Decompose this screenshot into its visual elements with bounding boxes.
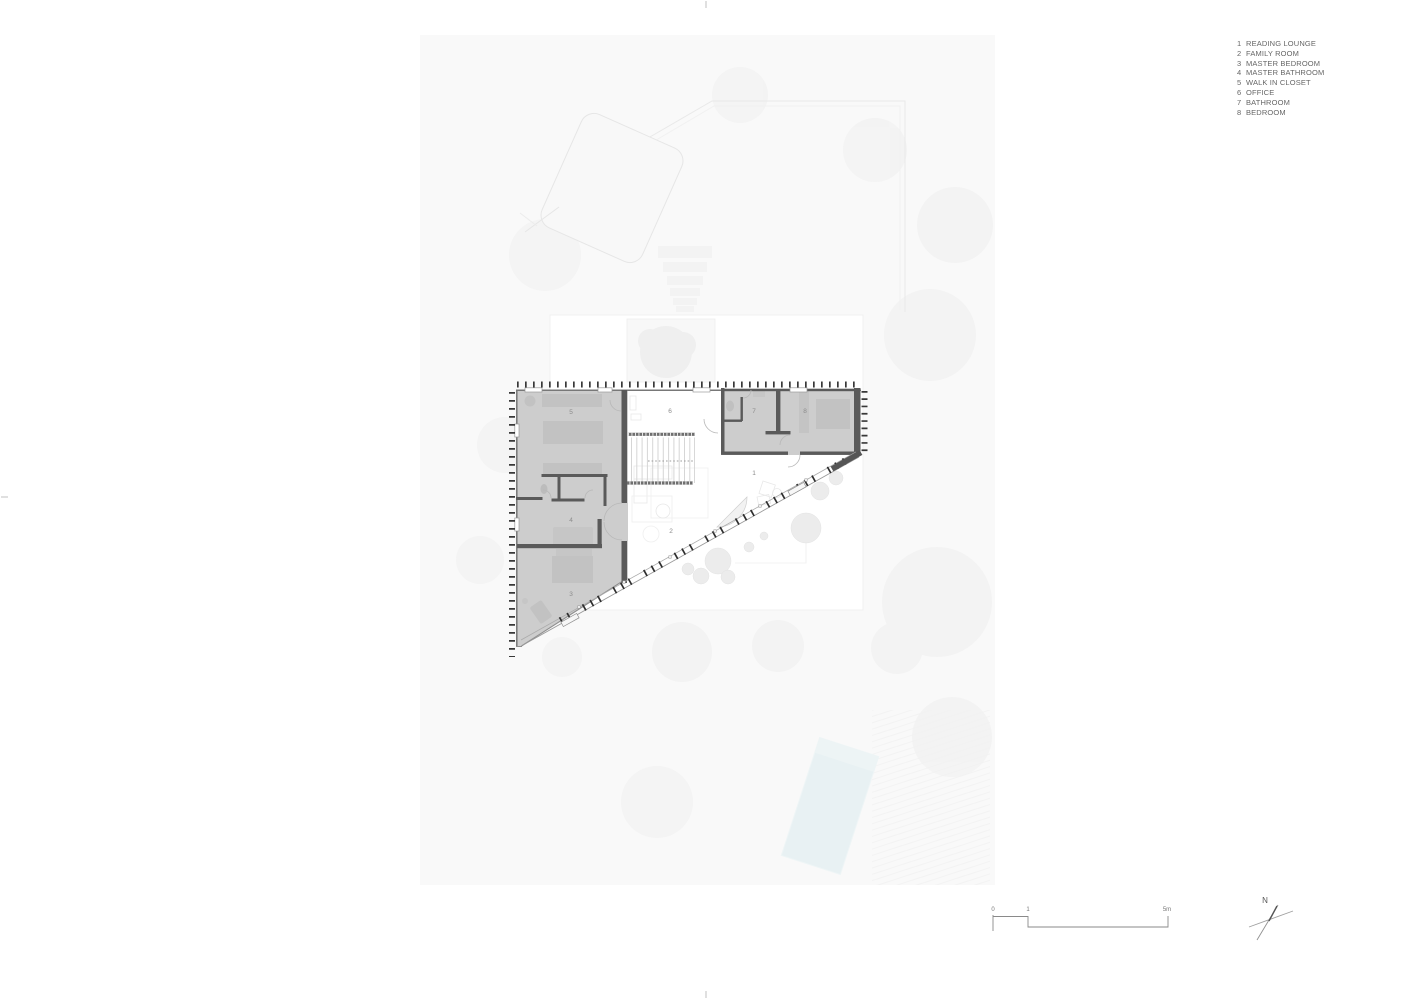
- room-label-5: 5: [569, 409, 573, 416]
- legend-item: 7 BATHROOM: [1237, 98, 1324, 108]
- legend-number: 5: [1237, 78, 1246, 88]
- room-label-6: 6: [668, 408, 672, 415]
- legend-number: 1: [1237, 39, 1246, 49]
- legend-item: 2 FAMILY ROOM: [1237, 49, 1324, 59]
- legend-number: 7: [1237, 98, 1246, 108]
- legend-label: MASTER BATHROOM: [1246, 68, 1324, 78]
- crop-mark-bottom: [705, 991, 707, 998]
- legend-item: 4 MASTER BATHROOM: [1237, 68, 1324, 78]
- room-label-2: 2: [669, 528, 673, 535]
- north-arrow: N: [1249, 896, 1293, 940]
- crop-mark-left: [1, 496, 8, 498]
- legend-label: OFFICE: [1246, 88, 1274, 98]
- scale-bar: 0 1 5m: [991, 907, 1171, 931]
- pool-deck: [872, 710, 990, 885]
- scale-tick-1: 1: [1026, 907, 1030, 913]
- legend-item: 1 READING LOUNGE: [1237, 39, 1324, 49]
- scale-tick-0: 0: [991, 907, 995, 913]
- floor-plan-drawing: 1 2 3 4 5 6 7 8 0 1 5m N: [0, 0, 1414, 1000]
- legend-item: 5 WALK IN CLOSET: [1237, 78, 1324, 88]
- legend-number: 8: [1237, 108, 1246, 118]
- legend-label: BATHROOM: [1246, 98, 1290, 108]
- room-label-1: 1: [752, 470, 756, 477]
- legend-label: FAMILY ROOM: [1246, 49, 1299, 59]
- legend-item: 3 MASTER BEDROOM: [1237, 59, 1324, 69]
- plan-sheet: 1 2 3 4 5 6 7 8 0 1 5m N 1 READING LOUNG…: [0, 0, 1414, 1000]
- room-legend: 1 READING LOUNGE 2 FAMILY ROOM 3 MASTER …: [1237, 39, 1324, 117]
- north-label: N: [1262, 896, 1268, 905]
- room-label-3: 3: [569, 591, 573, 598]
- legend-item: 8 BEDROOM: [1237, 108, 1324, 118]
- room-label-7: 7: [752, 408, 756, 415]
- legend-label: MASTER BEDROOM: [1246, 59, 1320, 69]
- legend-number: 3: [1237, 59, 1246, 69]
- room-label-8: 8: [803, 408, 807, 415]
- legend-label: READING LOUNGE: [1246, 39, 1316, 49]
- legend-item: 6 OFFICE: [1237, 88, 1324, 98]
- legend-number: 2: [1237, 49, 1246, 59]
- crop-mark-top: [705, 1, 707, 8]
- legend-label: WALK IN CLOSET: [1246, 78, 1311, 88]
- scale-tick-5m: 5m: [1163, 907, 1171, 913]
- legend-label: BEDROOM: [1246, 108, 1286, 118]
- legend-number: 4: [1237, 68, 1246, 78]
- legend-number: 6: [1237, 88, 1246, 98]
- room-label-4: 4: [569, 517, 573, 524]
